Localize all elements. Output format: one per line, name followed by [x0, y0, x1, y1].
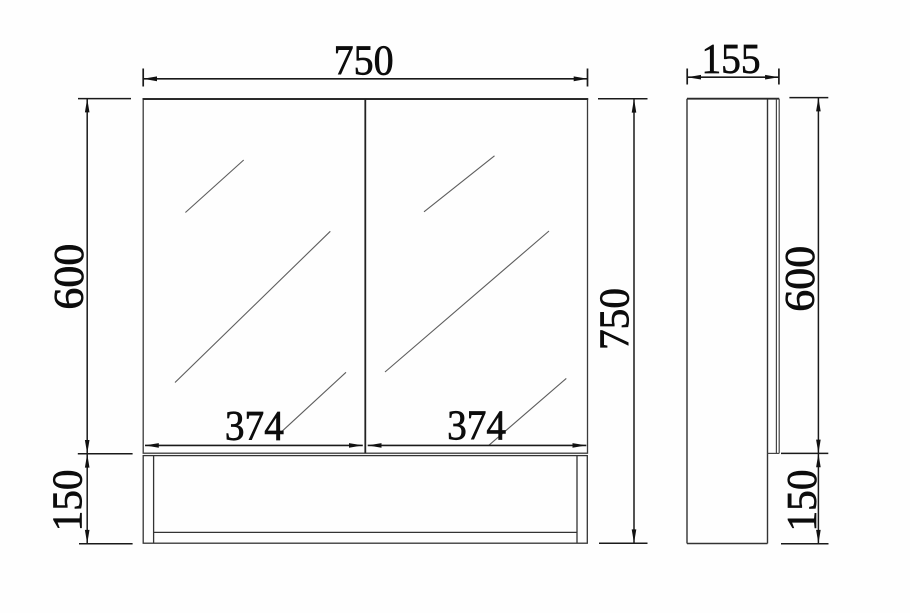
svg-text:750: 750: [592, 288, 639, 350]
svg-text:150: 150: [44, 469, 91, 531]
svg-text:155: 155: [702, 36, 761, 83]
svg-text:150: 150: [779, 470, 826, 532]
svg-text:374: 374: [447, 403, 506, 450]
svg-text:374: 374: [225, 403, 284, 450]
svg-text:750: 750: [334, 38, 394, 85]
svg-text:600: 600: [777, 246, 824, 312]
svg-text:600: 600: [46, 244, 93, 310]
